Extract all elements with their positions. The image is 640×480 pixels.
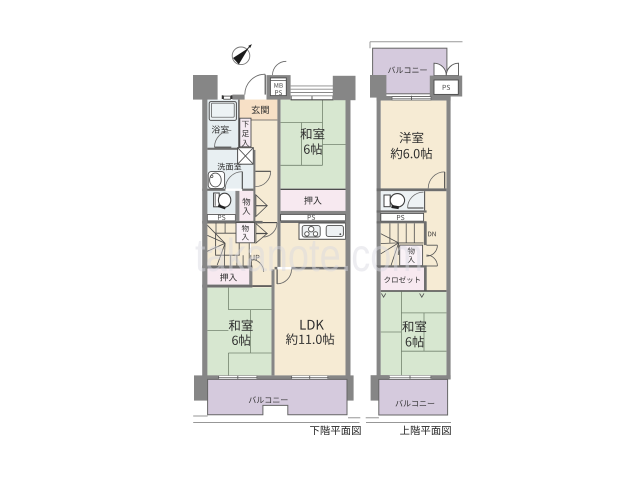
svg-text:takanote.com: takanote.com bbox=[195, 229, 423, 281]
